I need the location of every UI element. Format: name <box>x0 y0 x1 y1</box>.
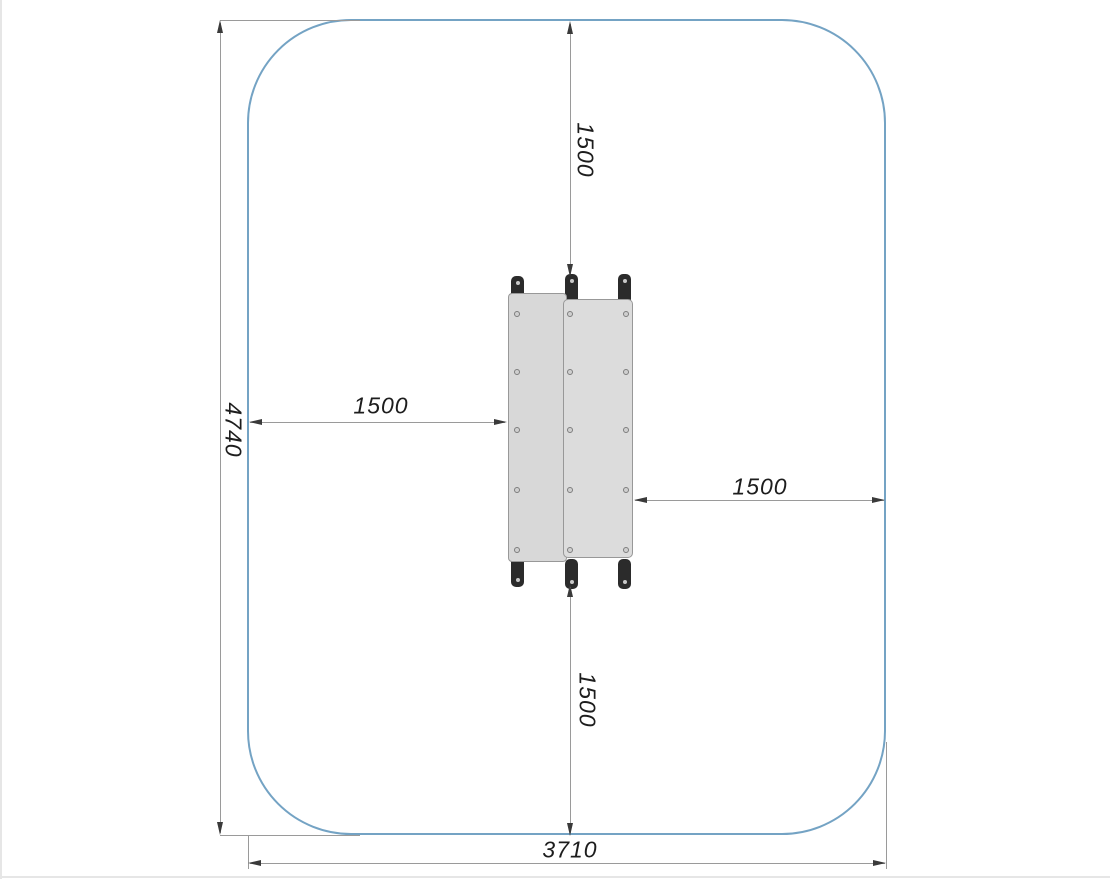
screw-dot <box>567 487 573 493</box>
foot-bolt-dot <box>623 580 627 584</box>
dimension-label-left-clearance: 1500 <box>353 393 408 420</box>
dim-arrow <box>249 419 262 425</box>
screw-dot <box>567 547 573 553</box>
extension-line <box>220 835 360 836</box>
screw-dot <box>623 547 629 553</box>
dim-arrow <box>872 497 885 503</box>
dim-arrow <box>248 860 261 866</box>
screw-dot <box>623 311 629 317</box>
dim-arrow <box>567 823 573 836</box>
screw-dot <box>623 369 629 375</box>
extension-line <box>220 20 360 21</box>
bench-foot <box>618 559 631 589</box>
screw-dot <box>623 487 629 493</box>
screw-dot <box>514 369 520 375</box>
photo-edge-left <box>0 0 2 879</box>
foot-bolt-dot <box>516 281 520 285</box>
extension-line <box>886 742 887 869</box>
screw-dot <box>567 369 573 375</box>
screw-dot <box>514 487 520 493</box>
dimension-line <box>250 422 505 423</box>
dimension-label-zone-length: 4740 <box>220 402 247 457</box>
screw-dot <box>567 427 573 433</box>
foot-bolt-dot <box>516 578 520 582</box>
dim-arrow <box>494 419 507 425</box>
dim-arrow <box>567 264 573 277</box>
dimension-label-zone-width: 3710 <box>542 837 597 864</box>
dimension-label-bottom-clearance: 1500 <box>574 672 601 727</box>
screw-dot <box>514 311 520 317</box>
dim-arrow <box>217 822 223 835</box>
dim-arrow <box>217 20 223 33</box>
dim-arrow <box>873 860 886 866</box>
safety-zone-drawing: 4740 3710 1500 1500 1500 1500 <box>0 0 1110 879</box>
dim-arrow <box>567 21 573 34</box>
photo-edge-bottom <box>0 876 1110 878</box>
screw-dot <box>567 311 573 317</box>
screw-dot <box>514 427 520 433</box>
dimension-line <box>570 587 571 833</box>
screw-dot <box>514 547 520 553</box>
screw-dot <box>623 427 629 433</box>
dimension-label-top-clearance: 1500 <box>572 122 599 177</box>
foot-bolt-dot <box>623 279 627 283</box>
dimension-label-right-clearance: 1500 <box>732 474 787 501</box>
dim-arrow <box>567 584 573 597</box>
dim-arrow <box>634 497 647 503</box>
foot-bolt-dot <box>570 279 574 283</box>
